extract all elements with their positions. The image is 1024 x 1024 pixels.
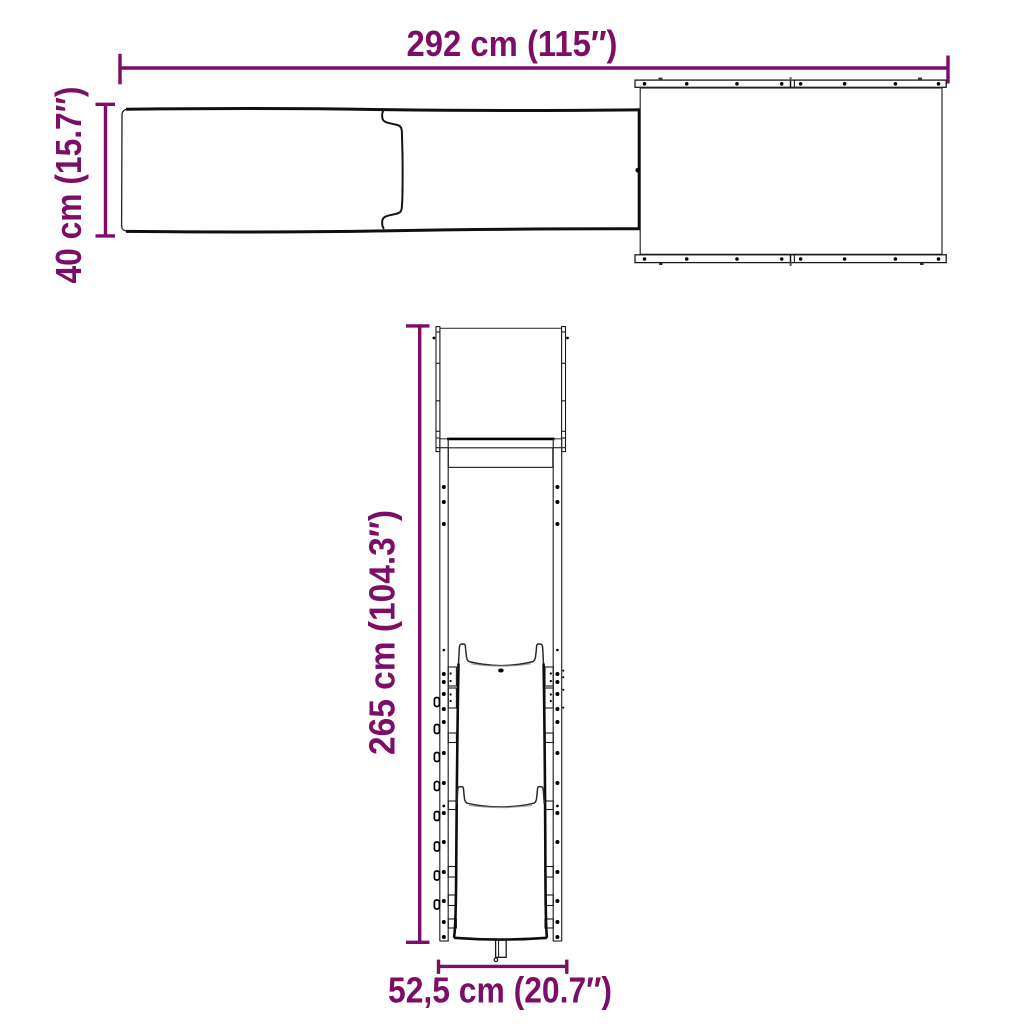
svg-text:265 cm (104.3″): 265 cm (104.3″) bbox=[362, 510, 403, 755]
svg-text:292 cm (115″): 292 cm (115″) bbox=[407, 23, 618, 64]
svg-text:40 cm (15.7″): 40 cm (15.7″) bbox=[48, 87, 89, 284]
svg-text:52,5 cm (20.7″): 52,5 cm (20.7″) bbox=[388, 970, 612, 1011]
